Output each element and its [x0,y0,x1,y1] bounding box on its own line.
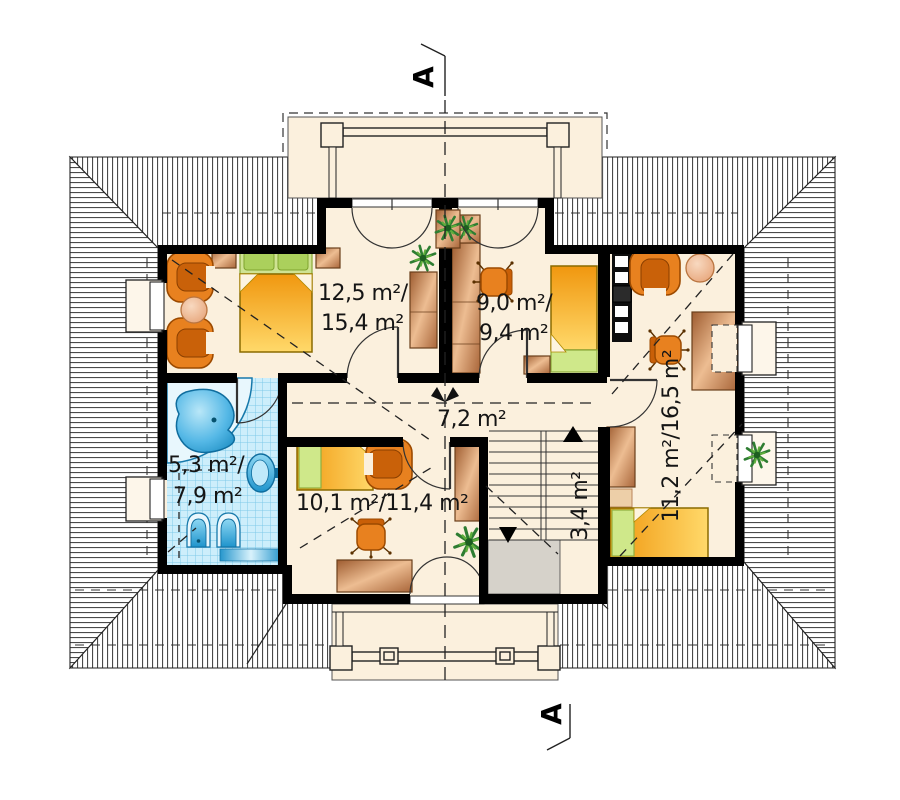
room-label-bottom: 10,1 m²/11,4 m² [296,493,468,515]
shelf-unit [612,250,632,342]
window-right-upper [712,322,776,375]
room-label-bathroom-line2: 7,9 m² [173,486,242,508]
single-bed [551,266,597,372]
armchair [167,252,215,302]
stairwell-void [488,540,560,594]
floor-plan: 12,5 m²/ 15,4 m² 9,0 m²/ 9,4 m² 7,2 m² 5… [0,0,900,800]
wardrobe [607,427,635,507]
bath-mat [220,549,282,561]
room-label-bedroom-line1: 12,5 m²/ [318,283,408,305]
window-bathroom [126,477,164,521]
bidet [217,513,240,547]
window-bedroom [126,280,164,332]
section-marker-bottom: A [538,703,566,725]
round-table [686,254,714,282]
room-label-bathroom-line1: 5,3 m²/ [168,455,244,477]
section-marker-top: A [410,66,438,88]
desk [337,560,412,592]
plan-drawing [0,0,900,800]
armchair [630,249,680,297]
room-label-right: 11,2 m²/16,5 m² [661,350,683,522]
round-table [181,297,207,323]
armchair [167,318,215,368]
room-label-bedroom-line2: 15,4 m² [321,313,404,335]
toilet [187,513,210,547]
single-bed [297,444,373,490]
double-bed [240,248,312,352]
room-label-small-line1: 9,0 m²/ [476,293,552,315]
dresser [410,272,437,348]
room-label-hall: 7,2 m² [437,409,506,431]
room-label-small-line2: 9,4 m² [479,323,548,345]
room-label-stairs: 3,4 m² [570,471,592,540]
